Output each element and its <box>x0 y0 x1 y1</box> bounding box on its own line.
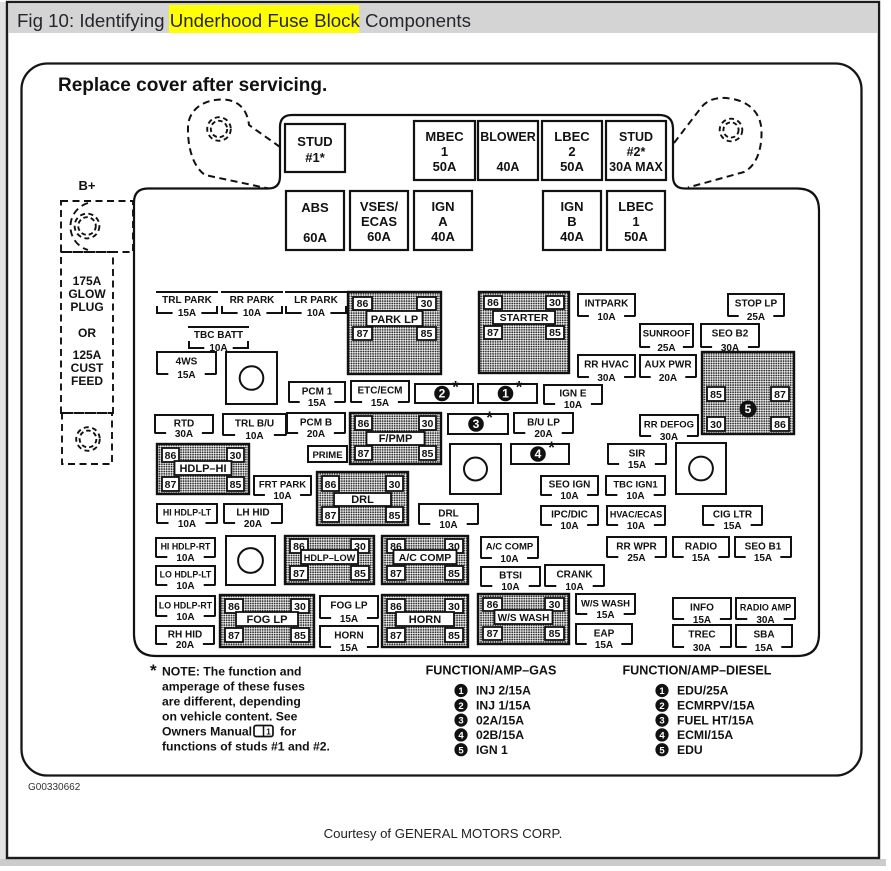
svg-text:4: 4 <box>535 447 542 461</box>
svg-text:30A: 30A <box>660 432 678 443</box>
svg-text:5: 5 <box>458 745 464 756</box>
svg-text:87: 87 <box>293 568 305 580</box>
svg-text:10A: 10A <box>176 581 194 592</box>
svg-text:*: * <box>150 661 157 680</box>
svg-text:30: 30 <box>230 450 242 462</box>
svg-text:HVAC/ECAS: HVAC/ECAS <box>610 510 662 520</box>
svg-text:87: 87 <box>357 328 369 340</box>
svg-text:STUD: STUD <box>297 134 332 149</box>
svg-text:85: 85 <box>421 328 433 340</box>
svg-text:RR PARK: RR PARK <box>230 295 276 306</box>
svg-text:40A: 40A <box>431 229 455 244</box>
svg-text:RADIO: RADIO <box>685 542 717 553</box>
svg-text:85: 85 <box>448 630 460 642</box>
svg-text:TRL B/U: TRL B/U <box>235 419 274 430</box>
svg-text:MBEC: MBEC <box>425 129 464 144</box>
svg-text:30: 30 <box>421 298 433 310</box>
svg-text:30A MAX: 30A MAX <box>609 160 663 174</box>
svg-text:PCM B: PCM B <box>300 418 332 429</box>
svg-text:W/S WASH: W/S WASH <box>581 599 630 610</box>
svg-text:40A: 40A <box>497 160 520 174</box>
svg-text:HI HDLP-LT: HI HDLP-LT <box>163 508 212 518</box>
svg-text:PARK LP: PARK LP <box>371 314 418 326</box>
svg-text:ECMI/15A: ECMI/15A <box>677 728 733 742</box>
svg-text:10A: 10A <box>597 312 615 323</box>
svg-text:4: 4 <box>659 731 665 742</box>
svg-text:5: 5 <box>659 745 665 756</box>
svg-text:85: 85 <box>549 628 561 640</box>
svg-text:DRL: DRL <box>351 494 374 506</box>
svg-text:85: 85 <box>549 327 561 339</box>
svg-text:STOP LP: STOP LP <box>735 299 778 310</box>
svg-text:PRIME: PRIME <box>312 450 342 461</box>
svg-text:02A/15A: 02A/15A <box>476 713 524 727</box>
svg-text:85: 85 <box>354 568 366 580</box>
svg-text:FRT PARK: FRT PARK <box>259 480 306 491</box>
svg-text:4WS: 4WS <box>176 357 198 368</box>
svg-text:87: 87 <box>390 630 402 642</box>
svg-text:30: 30 <box>294 601 306 613</box>
svg-text:SEO B1: SEO B1 <box>745 542 782 553</box>
svg-text:86: 86 <box>325 479 337 491</box>
svg-text:85: 85 <box>230 479 242 491</box>
svg-text:VSES/: VSES/ <box>360 199 399 214</box>
svg-text:Replace cover after servicing.: Replace cover after servicing. <box>58 75 327 96</box>
svg-text:CUST: CUST <box>71 361 104 375</box>
svg-text:#2*: #2* <box>627 145 646 159</box>
svg-text:175A: 175A <box>73 274 102 288</box>
svg-text:4: 4 <box>458 731 464 742</box>
svg-text:*: * <box>452 378 459 397</box>
svg-text:INFO: INFO <box>690 603 714 614</box>
svg-text:50A: 50A <box>624 229 648 244</box>
svg-text:IPC/DIC: IPC/DIC <box>551 510 588 521</box>
svg-text:15A: 15A <box>595 640 613 651</box>
svg-text:1: 1 <box>441 144 448 159</box>
svg-text:*: * <box>486 408 493 427</box>
svg-text:PLUG: PLUG <box>70 300 103 314</box>
svg-text:10A: 10A <box>178 519 196 530</box>
svg-text:60A: 60A <box>367 229 391 244</box>
svg-text:RH HID: RH HID <box>168 630 202 641</box>
svg-text:A/C COMP: A/C COMP <box>486 542 534 553</box>
svg-text:10A: 10A <box>245 431 263 442</box>
svg-text:10A: 10A <box>627 521 645 532</box>
svg-text:EDU/25A: EDU/25A <box>677 684 729 698</box>
svg-text:RR WPR: RR WPR <box>616 542 657 553</box>
svg-text:EAP: EAP <box>594 629 615 640</box>
svg-text:INJ 2/15A: INJ 2/15A <box>476 684 531 698</box>
svg-text:IGN: IGN <box>431 199 454 214</box>
svg-text:PCM 1: PCM 1 <box>302 387 333 398</box>
svg-text:10A: 10A <box>243 308 261 319</box>
svg-text:B/U LP: B/U LP <box>527 418 560 429</box>
svg-text:86: 86 <box>390 601 402 613</box>
svg-text:87: 87 <box>165 479 177 491</box>
svg-text:15A: 15A <box>178 308 196 319</box>
svg-text:IGN 1: IGN 1 <box>476 743 508 757</box>
svg-text:DRL: DRL <box>438 509 459 520</box>
svg-text:87: 87 <box>390 568 402 580</box>
svg-text:2: 2 <box>659 701 664 712</box>
svg-text:CRANK: CRANK <box>556 570 593 581</box>
svg-text:HDLP–HI: HDLP–HI <box>179 463 226 475</box>
svg-text:FEED: FEED <box>71 374 103 388</box>
svg-text:FOG LP: FOG LP <box>247 614 288 626</box>
svg-text:B+: B+ <box>79 178 96 193</box>
svg-text:86: 86 <box>165 450 177 462</box>
svg-text:2: 2 <box>439 387 446 401</box>
svg-text:50A: 50A <box>433 159 457 174</box>
svg-text:25A: 25A <box>657 343 675 354</box>
svg-text:15A: 15A <box>177 370 195 381</box>
svg-text:EDU: EDU <box>677 743 703 757</box>
svg-text:INJ 1/15A: INJ 1/15A <box>476 699 531 713</box>
svg-text:IGN: IGN <box>560 199 583 214</box>
svg-text:1: 1 <box>502 387 509 401</box>
svg-text:20A: 20A <box>244 519 262 530</box>
svg-text:TREC: TREC <box>688 630 715 641</box>
svg-text:30A: 30A <box>597 373 615 384</box>
svg-text:87: 87 <box>325 510 337 522</box>
svg-text:SUNROOF: SUNROOF <box>643 329 691 340</box>
svg-text:10A: 10A <box>560 491 578 502</box>
svg-text:10A: 10A <box>176 553 194 564</box>
svg-text:20A: 20A <box>307 429 325 440</box>
svg-text:2: 2 <box>458 701 463 712</box>
svg-text:STUD: STUD <box>619 130 653 144</box>
svg-text:ECAS: ECAS <box>361 214 397 229</box>
svg-text:10A: 10A <box>501 582 519 593</box>
svg-text:SEO B2: SEO B2 <box>712 329 749 340</box>
svg-text:functions of studs #1 and #2.: functions of studs #1 and #2. <box>162 740 330 754</box>
svg-text:amperage of these fuses: amperage of these fuses <box>162 680 305 694</box>
svg-text:are different, depending: are different, depending <box>162 695 301 709</box>
svg-text:15A: 15A <box>754 553 772 564</box>
svg-text:15A: 15A <box>692 553 710 564</box>
svg-text:25A: 25A <box>627 553 645 564</box>
svg-text:20A: 20A <box>176 640 194 651</box>
svg-text:30: 30 <box>549 297 561 309</box>
svg-text:10A: 10A <box>176 612 194 623</box>
svg-text:85: 85 <box>448 568 460 580</box>
svg-text:87: 87 <box>487 628 499 640</box>
svg-text:FOG LP: FOG LP <box>330 601 368 612</box>
svg-text:86: 86 <box>358 418 370 430</box>
svg-text:SIR: SIR <box>629 449 646 460</box>
svg-text:TBC BATT: TBC BATT <box>194 330 243 341</box>
svg-text:Fig 10: Identifying Underhood: Fig 10: Identifying Underhood Fuse Block… <box>17 10 471 31</box>
svg-text:A/C COMP: A/C COMP <box>399 552 452 564</box>
svg-text:1: 1 <box>632 214 639 229</box>
svg-text:FUNCTION/AMP–GAS: FUNCTION/AMP–GAS <box>426 664 557 678</box>
svg-text:B: B <box>567 214 576 229</box>
svg-text:5: 5 <box>745 402 752 416</box>
svg-text:Courtesy of GENERAL MOTORS COR: Courtesy of GENERAL MOTORS CORP. <box>324 826 563 841</box>
svg-text:for: for <box>280 725 297 739</box>
svg-text:LO HDLP-LT: LO HDLP-LT <box>160 570 212 580</box>
svg-text:10A: 10A <box>560 521 578 532</box>
svg-text:86: 86 <box>487 599 499 611</box>
svg-text:10A: 10A <box>307 308 325 319</box>
svg-text:15A: 15A <box>340 614 358 625</box>
svg-text:86: 86 <box>357 298 369 310</box>
svg-text:LO HDLP-RT: LO HDLP-RT <box>159 601 213 611</box>
svg-text:15A: 15A <box>340 643 358 654</box>
svg-text:25A: 25A <box>747 312 765 323</box>
svg-text:15A: 15A <box>755 643 773 654</box>
svg-text:86: 86 <box>228 601 240 613</box>
svg-text:on vehicle content. See: on vehicle content. See <box>162 710 298 724</box>
svg-text:30: 30 <box>448 601 460 613</box>
svg-text:15A: 15A <box>596 610 614 621</box>
svg-text:TRL PARK: TRL PARK <box>162 295 212 306</box>
svg-text:*: * <box>548 438 555 457</box>
svg-text:RADIO AMP: RADIO AMP <box>740 603 791 613</box>
svg-text:02B/15A: 02B/15A <box>476 728 524 742</box>
svg-text:50A: 50A <box>560 159 584 174</box>
svg-text:RR HVAC: RR HVAC <box>584 360 629 371</box>
svg-text:FUNCTION/AMP–DIESEL: FUNCTION/AMP–DIESEL <box>622 664 771 678</box>
svg-text:FUEL HT/15A: FUEL HT/15A <box>677 713 754 727</box>
svg-text:87: 87 <box>358 448 370 460</box>
svg-text:OR: OR <box>78 326 96 340</box>
svg-text:3: 3 <box>473 417 480 431</box>
svg-text:GLOW: GLOW <box>68 287 106 301</box>
svg-text:10A: 10A <box>565 582 583 593</box>
svg-text:60A: 60A <box>303 230 327 245</box>
svg-text:85: 85 <box>389 510 401 522</box>
svg-text:86: 86 <box>487 297 499 309</box>
svg-text:SEO IGN: SEO IGN <box>549 480 591 491</box>
svg-text:LH HID: LH HID <box>236 508 269 519</box>
svg-text:ABS: ABS <box>301 200 329 215</box>
svg-text:87: 87 <box>228 630 240 642</box>
svg-text:85: 85 <box>710 389 722 401</box>
svg-text:1: 1 <box>458 686 464 697</box>
svg-text:125A: 125A <box>73 348 102 362</box>
svg-text:10A: 10A <box>564 400 582 411</box>
svg-text:ECMRPV/15A: ECMRPV/15A <box>677 699 755 713</box>
svg-text:87: 87 <box>774 389 786 401</box>
svg-text:STARTER: STARTER <box>500 312 549 324</box>
svg-text:#1*: #1* <box>305 150 325 165</box>
svg-text:30A: 30A <box>175 429 193 440</box>
svg-text:G00330662: G00330662 <box>28 782 81 793</box>
svg-text:SBA: SBA <box>753 630 774 641</box>
svg-text:10A: 10A <box>439 520 457 531</box>
svg-text:30: 30 <box>710 419 722 431</box>
svg-text:10A: 10A <box>273 491 291 502</box>
svg-text:10A: 10A <box>500 554 518 565</box>
svg-text:85: 85 <box>422 448 434 460</box>
svg-text:RTD: RTD <box>174 419 195 430</box>
svg-text:87: 87 <box>487 327 499 339</box>
svg-text:15A: 15A <box>371 398 389 409</box>
svg-text:86: 86 <box>774 419 786 431</box>
svg-text:10A: 10A <box>626 491 644 502</box>
svg-text:30: 30 <box>422 418 434 430</box>
svg-text:LBEC: LBEC <box>554 129 590 144</box>
svg-text:AUX PWR: AUX PWR <box>644 360 692 371</box>
svg-text:A: A <box>438 214 448 229</box>
svg-text:ETC/ECM: ETC/ECM <box>358 386 403 397</box>
svg-text:20A: 20A <box>659 373 677 384</box>
svg-text:30: 30 <box>549 599 561 611</box>
svg-text:HORN: HORN <box>334 631 363 642</box>
svg-text:HORN: HORN <box>409 614 441 626</box>
svg-text:INTPARK: INTPARK <box>585 299 629 310</box>
svg-text:TBC IGN1: TBC IGN1 <box>613 480 658 491</box>
svg-text:2: 2 <box>568 144 575 159</box>
svg-text:IGN E: IGN E <box>559 389 587 400</box>
svg-text:15A: 15A <box>308 398 326 409</box>
svg-text:W/S WASH: W/S WASH <box>498 613 550 624</box>
svg-text:15A: 15A <box>628 460 646 471</box>
svg-text:30A: 30A <box>693 643 711 654</box>
svg-text:BLOWER: BLOWER <box>480 130 536 144</box>
svg-text:15A: 15A <box>723 521 741 532</box>
svg-text:LR PARK: LR PARK <box>294 295 338 306</box>
svg-text:NOTE: The function and: NOTE: The function and <box>162 665 301 679</box>
svg-text:CIG LTR: CIG LTR <box>713 510 753 521</box>
svg-text:LBEC: LBEC <box>618 199 654 214</box>
svg-text:1: 1 <box>266 728 271 737</box>
svg-text:HDLP–LOW: HDLP–LOW <box>304 553 356 563</box>
svg-text:F/PMP: F/PMP <box>379 433 413 445</box>
svg-text:30: 30 <box>389 479 401 491</box>
svg-text:HI HDLP-RT: HI HDLP-RT <box>161 542 211 552</box>
svg-text:*: * <box>516 378 523 397</box>
svg-text:1: 1 <box>659 686 665 697</box>
svg-text:85: 85 <box>294 630 306 642</box>
svg-text:3: 3 <box>458 716 463 727</box>
svg-text:40A: 40A <box>560 229 584 244</box>
svg-text:BTSI: BTSI <box>499 571 522 582</box>
svg-text:RR DEFOG: RR DEFOG <box>644 420 694 431</box>
svg-text:Owners Manual: Owners Manual <box>162 725 252 739</box>
svg-text:3: 3 <box>659 716 664 727</box>
